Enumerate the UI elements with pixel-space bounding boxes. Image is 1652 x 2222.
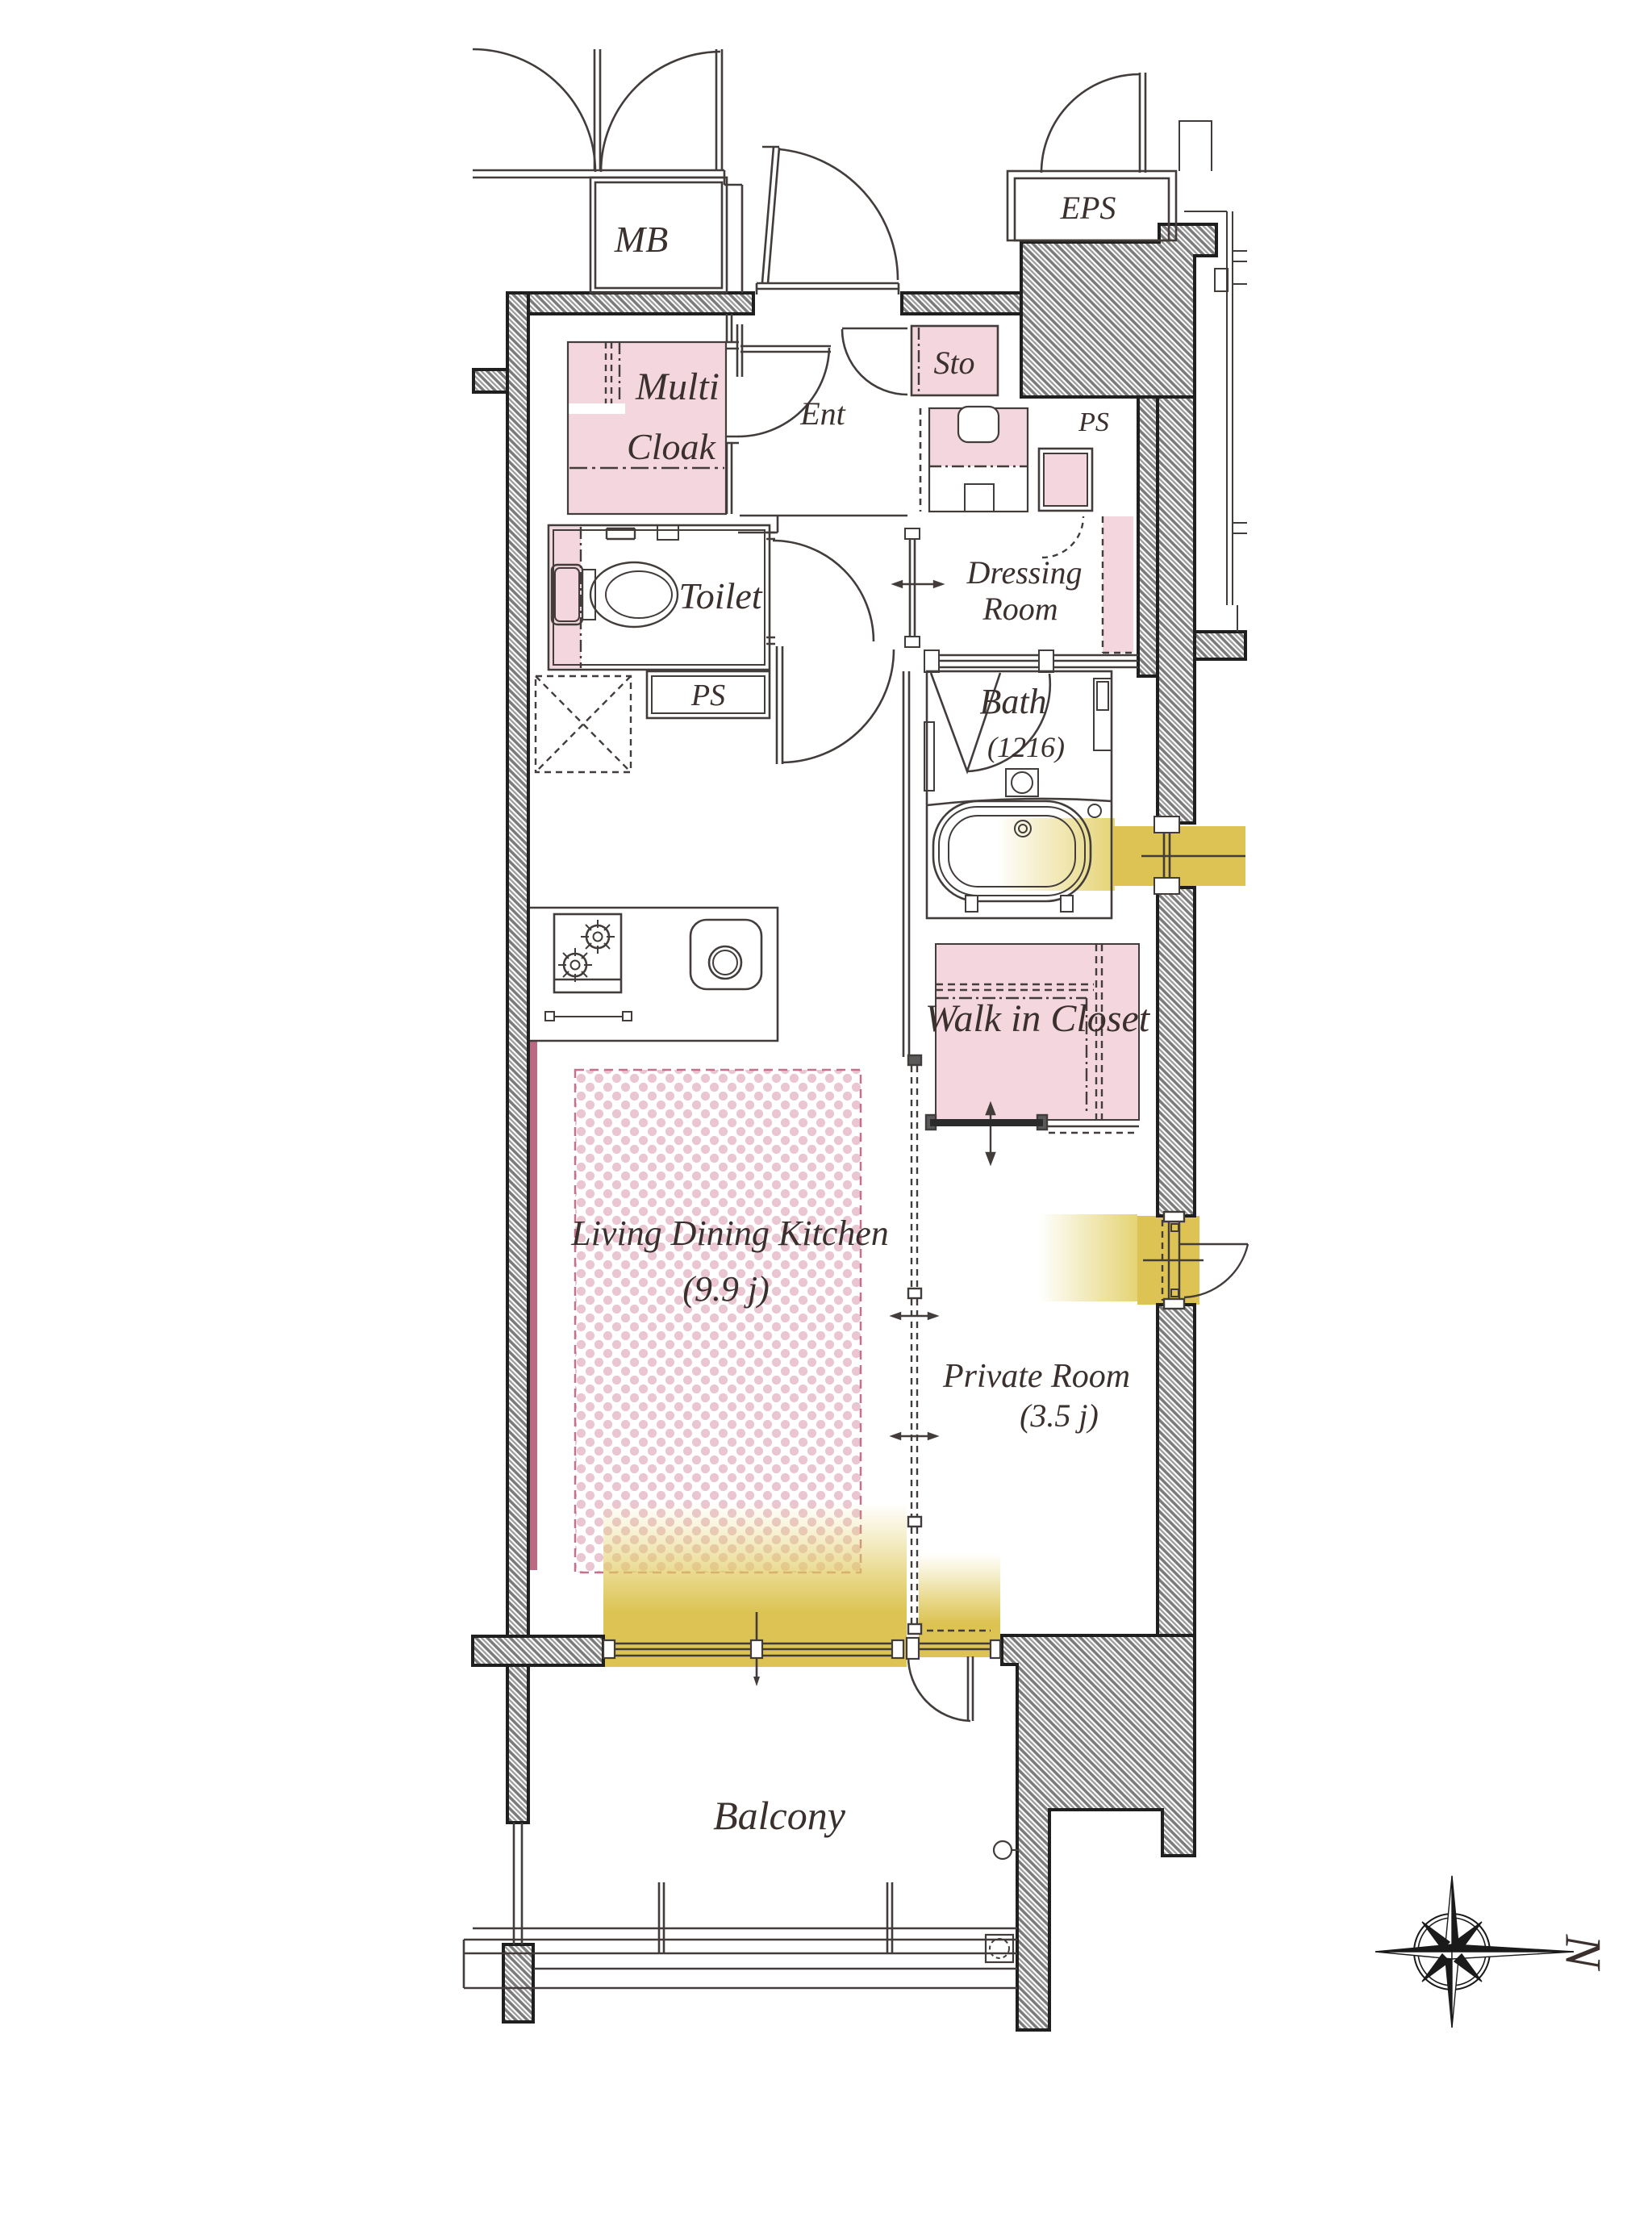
svg-text:N: N <box>1555 1934 1612 1972</box>
svg-text:Ent: Ent <box>799 395 845 432</box>
svg-text:Sto: Sto <box>933 345 974 381</box>
svg-text:Dressing: Dressing <box>966 554 1083 591</box>
svg-text:Private Room: Private Room <box>942 1358 1130 1395</box>
svg-text:(1216): (1216) <box>987 731 1065 763</box>
svg-text:Multi: Multi <box>635 365 720 408</box>
svg-text:Room: Room <box>982 591 1058 627</box>
svg-text:(9.9 j): (9.9 j) <box>682 1269 770 1309</box>
svg-text:MB: MB <box>614 219 668 260</box>
svg-text:Cloak: Cloak <box>627 426 716 467</box>
svg-text:Walk in Closet: Walk in Closet <box>925 997 1151 1040</box>
svg-text:Balcony: Balcony <box>713 1793 846 1838</box>
svg-text:Toilet: Toilet <box>678 575 762 616</box>
svg-text:EPS: EPS <box>1060 190 1116 226</box>
svg-text:Living Dining Kitchen: Living Dining Kitchen <box>570 1213 889 1253</box>
svg-text:Bath: Bath <box>979 682 1046 721</box>
svg-text:PS: PS <box>690 679 725 712</box>
svg-text:(3.5 j): (3.5 j) <box>1020 1397 1099 1434</box>
svg-text:PS: PS <box>1078 407 1109 437</box>
